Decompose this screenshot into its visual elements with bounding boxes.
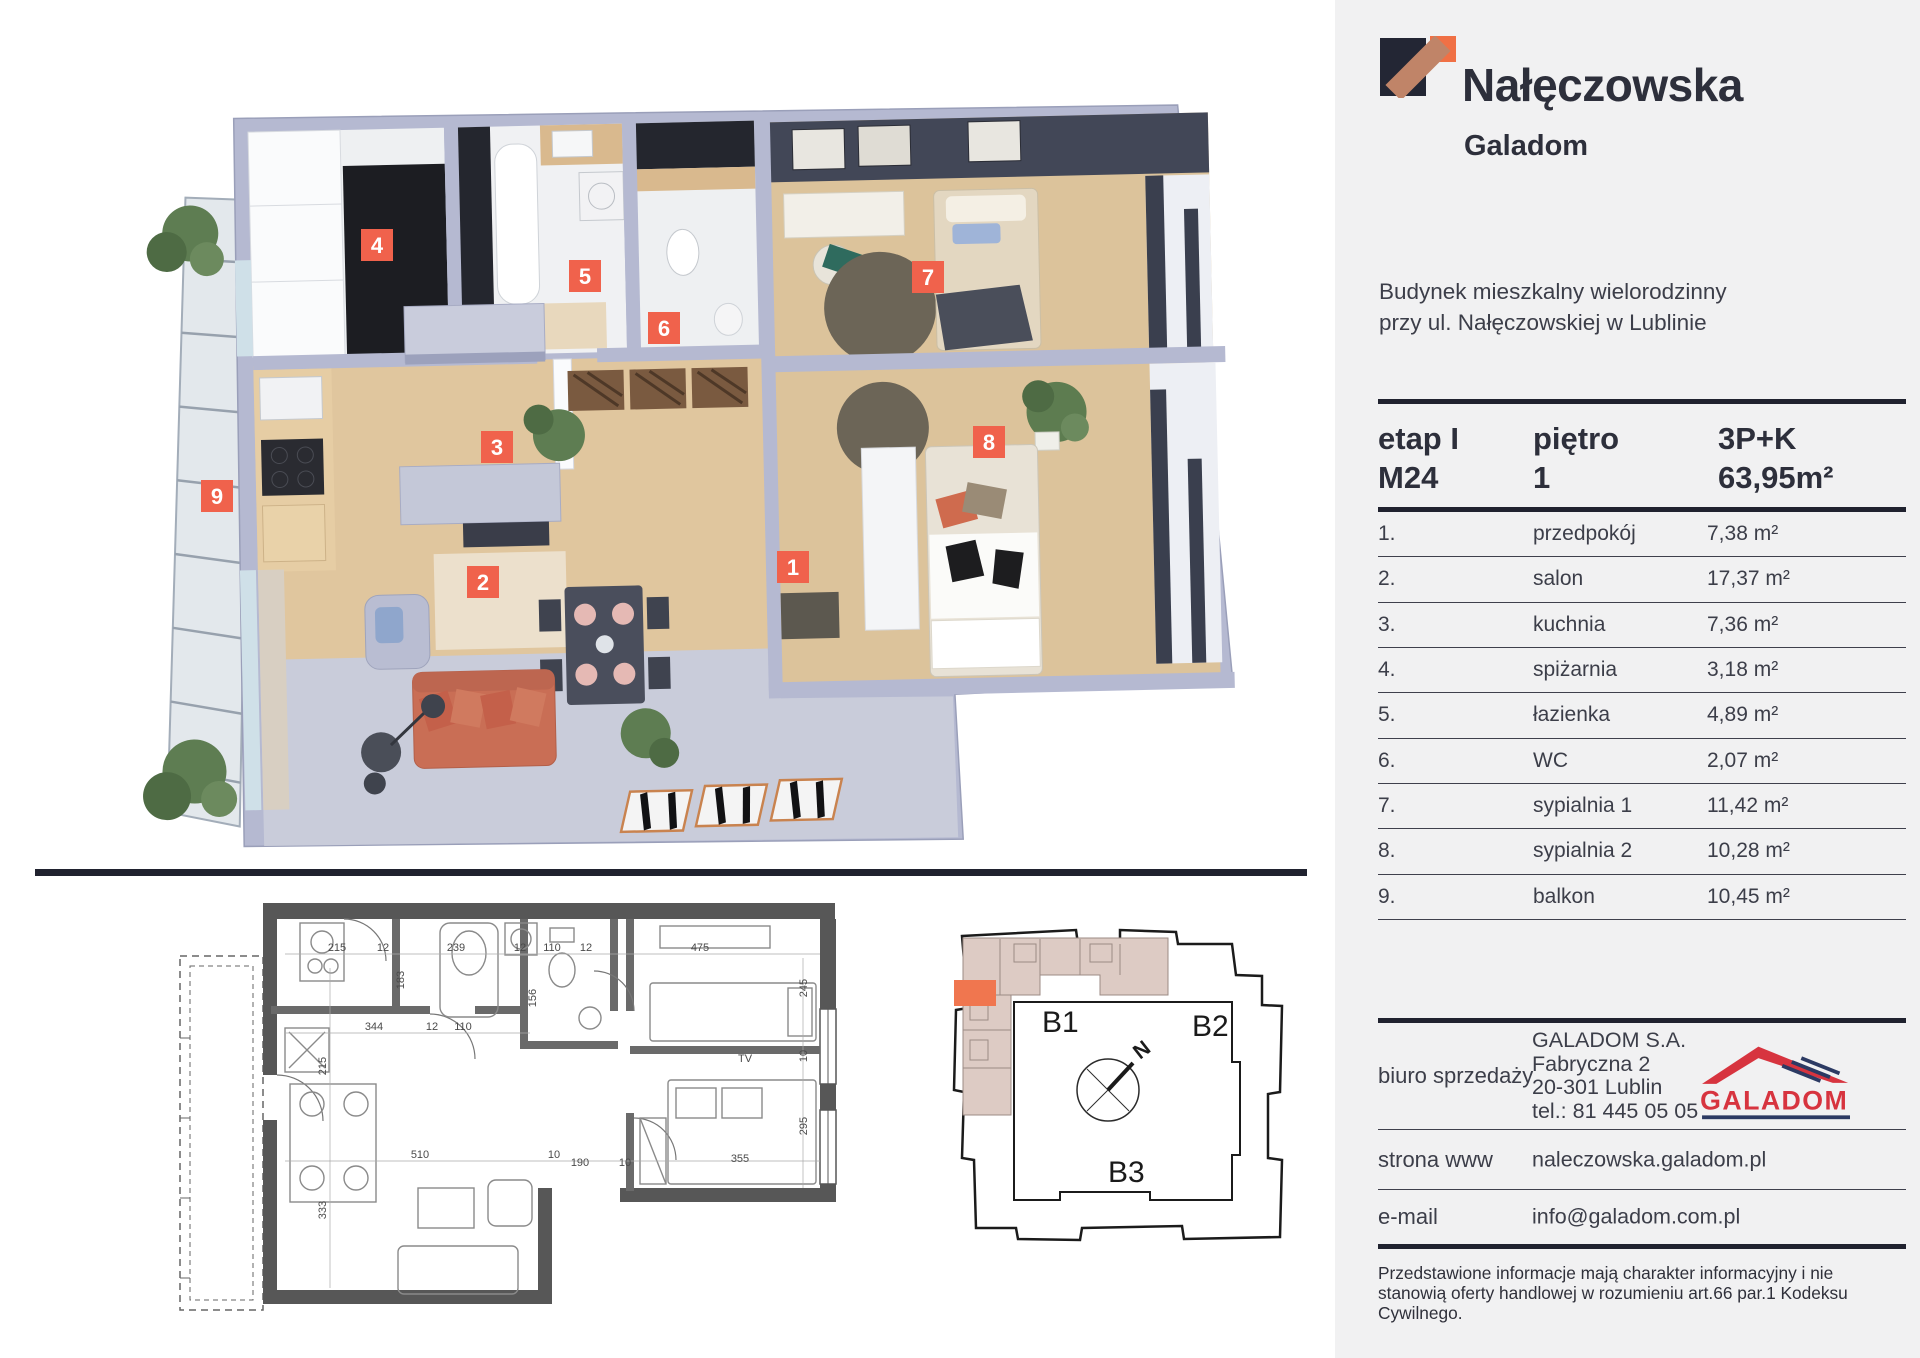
room-badge-number: 7 [922, 265, 934, 290]
bath-sink [552, 130, 593, 157]
room-badge: 6 [648, 312, 680, 344]
slat-mats [567, 367, 748, 411]
website-url[interactable]: naleczowska.galadom.pl [1532, 1147, 1766, 1172]
table-row: 8.sypialnia 210,28 m² [1378, 829, 1906, 874]
kitchen-sink [260, 377, 323, 420]
room-badge: 8 [973, 426, 1005, 458]
email-row: e-mail info@galadom.com.pl [1378, 1190, 1906, 1249]
dimension-label: 355 [731, 1153, 749, 1165]
table-row: 7.sypialnia 111,42 m² [1378, 784, 1906, 829]
room-name: balkon [1533, 885, 1707, 909]
curtain [258, 569, 289, 810]
room-badge-number: 2 [477, 570, 489, 595]
table-row: 9.balkon10,45 m² [1378, 875, 1906, 920]
blue-pillow [375, 607, 404, 644]
room-badge-number: 3 [491, 435, 503, 460]
room-name: spiżarnia [1533, 658, 1707, 682]
rooms-table: 1.przedpokój7,38 m²2.salon17,37 m²3.kuch… [1378, 512, 1906, 920]
wc-bin [714, 303, 743, 336]
room-badge-number: 6 [658, 316, 670, 341]
room-no: 6. [1378, 749, 1533, 773]
developer-name: Galadom [1464, 130, 1588, 163]
room-no: 7. [1378, 794, 1533, 818]
poster [968, 121, 1021, 162]
sales-office-row: biuro sprzedaży GALADOM S.A. Fabryczna 2… [1378, 1018, 1906, 1130]
room-area: 10,28 m² [1707, 839, 1906, 863]
dimension-label: 10 [548, 1149, 560, 1161]
dimension-label: 12 [426, 1021, 438, 1033]
dimension-label: 510 [411, 1149, 429, 1161]
galadom-logo: GALADOM [1698, 1039, 1855, 1123]
dimension-label: 10 [619, 1157, 631, 1169]
table-row: 3.kuchnia7,36 m² [1378, 603, 1906, 648]
galadom-logo-text: GALADOM [1700, 1086, 1848, 1116]
room-badge-number: 8 [983, 430, 995, 455]
room-area: 7,38 m² [1707, 522, 1906, 546]
washing-machine [579, 172, 624, 221]
table-row: 2.salon17,37 m² [1378, 557, 1906, 602]
dimension-label: TV [738, 1053, 753, 1065]
section-divider [35, 869, 1307, 876]
floorplan-2d: 2151223912110124751831562453441211021510… [0, 888, 950, 1358]
room-no: 1. [1378, 522, 1533, 546]
sales-office-label: biuro sprzedaży [1378, 1063, 1533, 1089]
bath-mat [536, 302, 607, 350]
dimension-label: 12 [580, 942, 592, 954]
room-name: kuchnia [1533, 613, 1707, 637]
dimension-label: 333 [317, 1201, 329, 1219]
table-row: 4.spiżarnia3,18 m² [1378, 648, 1906, 693]
website-row: strona www naleczowska.galadom.pl [1378, 1130, 1906, 1190]
website-label: strona www [1378, 1147, 1493, 1173]
room-badge: 1 [777, 551, 809, 583]
type-area: 3P+K 63,95m² [1718, 419, 1906, 507]
room-no: 3. [1378, 613, 1533, 637]
wardrobe [861, 447, 919, 630]
dimension-label: 475 [691, 942, 709, 954]
room-name: sypialnia 2 [1533, 839, 1707, 863]
room-no: 8. [1378, 839, 1533, 863]
info-panel: Nałęczowska Galadom Budynek mieszkalny w… [1335, 0, 1920, 1358]
room-name: salon [1533, 567, 1707, 591]
room-name: WC [1533, 749, 1707, 773]
room-badge: 7 [912, 261, 944, 293]
site-label-b3: B3 [1108, 1156, 1145, 1189]
entry-mat [781, 592, 840, 639]
poster [792, 129, 845, 170]
room-area: 11,42 m² [1707, 794, 1906, 818]
room-area: 4,89 m² [1707, 703, 1906, 727]
cooktop [261, 439, 324, 496]
table-row: 1.przedpokój7,38 m² [1378, 512, 1906, 557]
toilet [666, 229, 699, 276]
tv-sideboard [400, 463, 561, 525]
room-no: 5. [1378, 703, 1533, 727]
project-title: Nałęczowska [1462, 58, 1743, 112]
room-badge-number: 1 [787, 555, 799, 580]
site-plan: B1 B2 B3 N [945, 915, 1305, 1255]
site-highlight-unit [954, 980, 996, 1006]
room-badge: 2 [467, 566, 499, 598]
legal-disclaimer: Przedstawione informacje mają charakter … [1378, 1264, 1902, 1323]
dimension-label: 215 [317, 1057, 329, 1075]
sales-office-address: GALADOM S.A. Fabryczna 2 20-301 Lublin t… [1532, 1029, 1698, 1123]
dimension-label: 110 [454, 1021, 472, 1033]
stage-unit: etap I M24 [1378, 419, 1533, 507]
floorplan-3d: 123456789 [0, 0, 1335, 888]
dimension-label: 12 [377, 942, 389, 954]
site-label-b1: B1 [1042, 1006, 1079, 1039]
dimension-label: 295 [798, 1117, 810, 1135]
room-no: 9. [1378, 885, 1533, 909]
chair [647, 597, 670, 629]
room-badge: 5 [569, 260, 601, 292]
dimension-label: 10 [798, 1050, 810, 1062]
email-address[interactable]: info@galadom.com.pl [1532, 1205, 1740, 1230]
dark-throw [936, 284, 1033, 350]
dimension-label: 190 [571, 1157, 589, 1169]
email-label: e-mail [1378, 1204, 1438, 1230]
kitchen-window [235, 260, 253, 356]
unit-summary: etap I M24 piętro 1 3P+K 63,95m² [1378, 399, 1906, 512]
pantry-cabinets [248, 130, 345, 357]
dimension-label: 110 [543, 942, 561, 954]
balcony-outline [180, 956, 263, 1310]
dimension-label: 12 [514, 942, 526, 954]
room-badge: 4 [361, 229, 393, 261]
table-row: 6.WC2,07 m² [1378, 739, 1906, 784]
dimension-label: 215 [328, 942, 346, 954]
dimension-label: 239 [447, 942, 465, 954]
room-area: 7,36 m² [1707, 613, 1906, 637]
room-area: 10,45 m² [1707, 885, 1906, 909]
room-badge-number: 4 [371, 233, 384, 258]
desk [784, 191, 905, 238]
chair [539, 599, 562, 631]
room-badge: 9 [201, 480, 233, 512]
cow-blanket [929, 532, 1039, 618]
room-badge: 3 [481, 431, 513, 463]
dimension-lines [285, 954, 820, 1288]
room-area: 2,07 m² [1707, 749, 1906, 773]
room-name: sypialnia 1 [1533, 794, 1707, 818]
dimension-label: 245 [798, 979, 810, 997]
site-label-b2: B2 [1192, 1010, 1229, 1043]
room-badge-number: 5 [579, 264, 591, 289]
dimension-label: 183 [395, 971, 407, 989]
bathtub [494, 144, 540, 305]
room-area: 3,18 m² [1707, 658, 1906, 682]
plant-pot [1035, 432, 1059, 451]
room-name: przedpokój [1533, 522, 1707, 546]
poster [858, 125, 911, 166]
tv-board [463, 521, 550, 547]
dimension-label: 344 [365, 1021, 383, 1033]
room-area: 17,37 m² [1707, 567, 1906, 591]
building-address: Budynek mieszkalny wielorodzinny przy ul… [1379, 276, 1727, 338]
room-name: łazienka [1533, 703, 1707, 727]
chair [648, 657, 671, 689]
wc-marble-wall [634, 121, 755, 170]
floor: piętro 1 [1533, 419, 1718, 507]
flat-card: 123456789 [0, 0, 1920, 1358]
room-no: 4. [1378, 658, 1533, 682]
brand-logo-icon [1380, 36, 1460, 98]
table-row: 5.łazienka4,89 m² [1378, 693, 1906, 738]
room-no: 2. [1378, 567, 1533, 591]
dimension-label: 156 [527, 989, 539, 1007]
room-badge-number: 9 [211, 484, 223, 509]
wc-counter [635, 167, 755, 192]
